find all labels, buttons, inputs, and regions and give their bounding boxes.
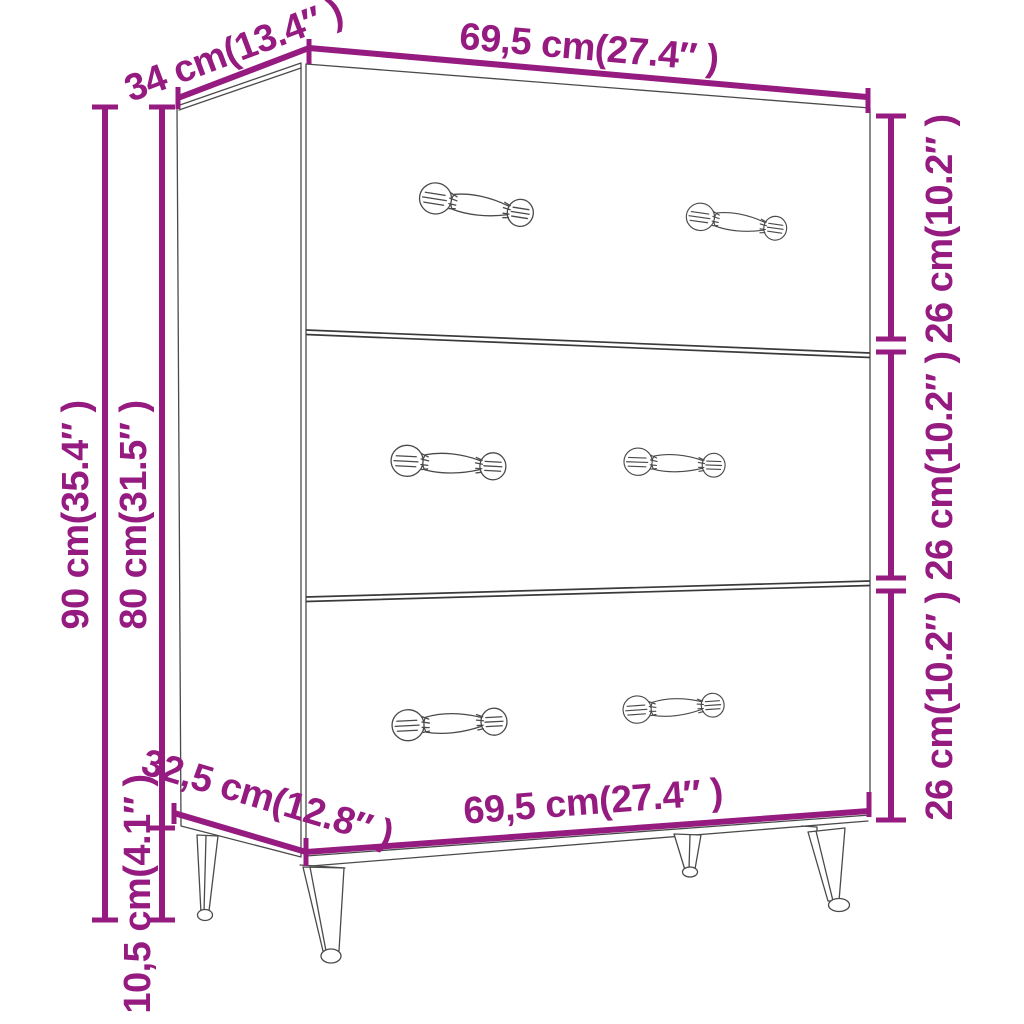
cabinet-leg-back-left bbox=[197, 835, 218, 921]
drawer2-handle-left bbox=[390, 444, 506, 481]
drawer3-handle-right bbox=[622, 690, 725, 724]
diagram-canvas: 34 cm(13.4″ ) 69,5 cm(27.4″ ) 26 cm(10.2… bbox=[0, 0, 1024, 1024]
label-body-height: 80 cm(31.5″ ) bbox=[113, 400, 155, 629]
cabinet-leg-back-right bbox=[674, 834, 701, 877]
label-leg-height: 10,5 cm(4.1″ ) bbox=[117, 774, 159, 1013]
label-drawer3-height: 26 cm(10.2″ ) bbox=[919, 591, 961, 820]
dimension-diagram: 34 cm(13.4″ ) 69,5 cm(27.4″ ) 26 cm(10.2… bbox=[0, 0, 1024, 1024]
label-drawer1-height: 26 cm(10.2″ ) bbox=[919, 114, 961, 343]
label-overall-height: 90 cm(35.4″ ) bbox=[55, 400, 97, 629]
drawer-divider-1 bbox=[306, 330, 870, 358]
label-drawer2-height: 26 cm(10.2″ ) bbox=[919, 351, 961, 580]
drawer1-handle-left bbox=[417, 181, 535, 230]
drawer1-handle-right bbox=[685, 201, 789, 242]
label-top-depth: 34 cm(13.4″ ) bbox=[119, 0, 348, 111]
drawer-divider-2 bbox=[306, 581, 870, 602]
drawer3-handle-left bbox=[391, 705, 507, 742]
cabinet-leg-front-right bbox=[802, 826, 850, 912]
drawer2-handle-right bbox=[624, 448, 726, 479]
cabinet-leg-front-left bbox=[300, 865, 345, 963]
dim-drawer-heights bbox=[876, 116, 906, 820]
cabinet-side-panel bbox=[177, 63, 301, 857]
